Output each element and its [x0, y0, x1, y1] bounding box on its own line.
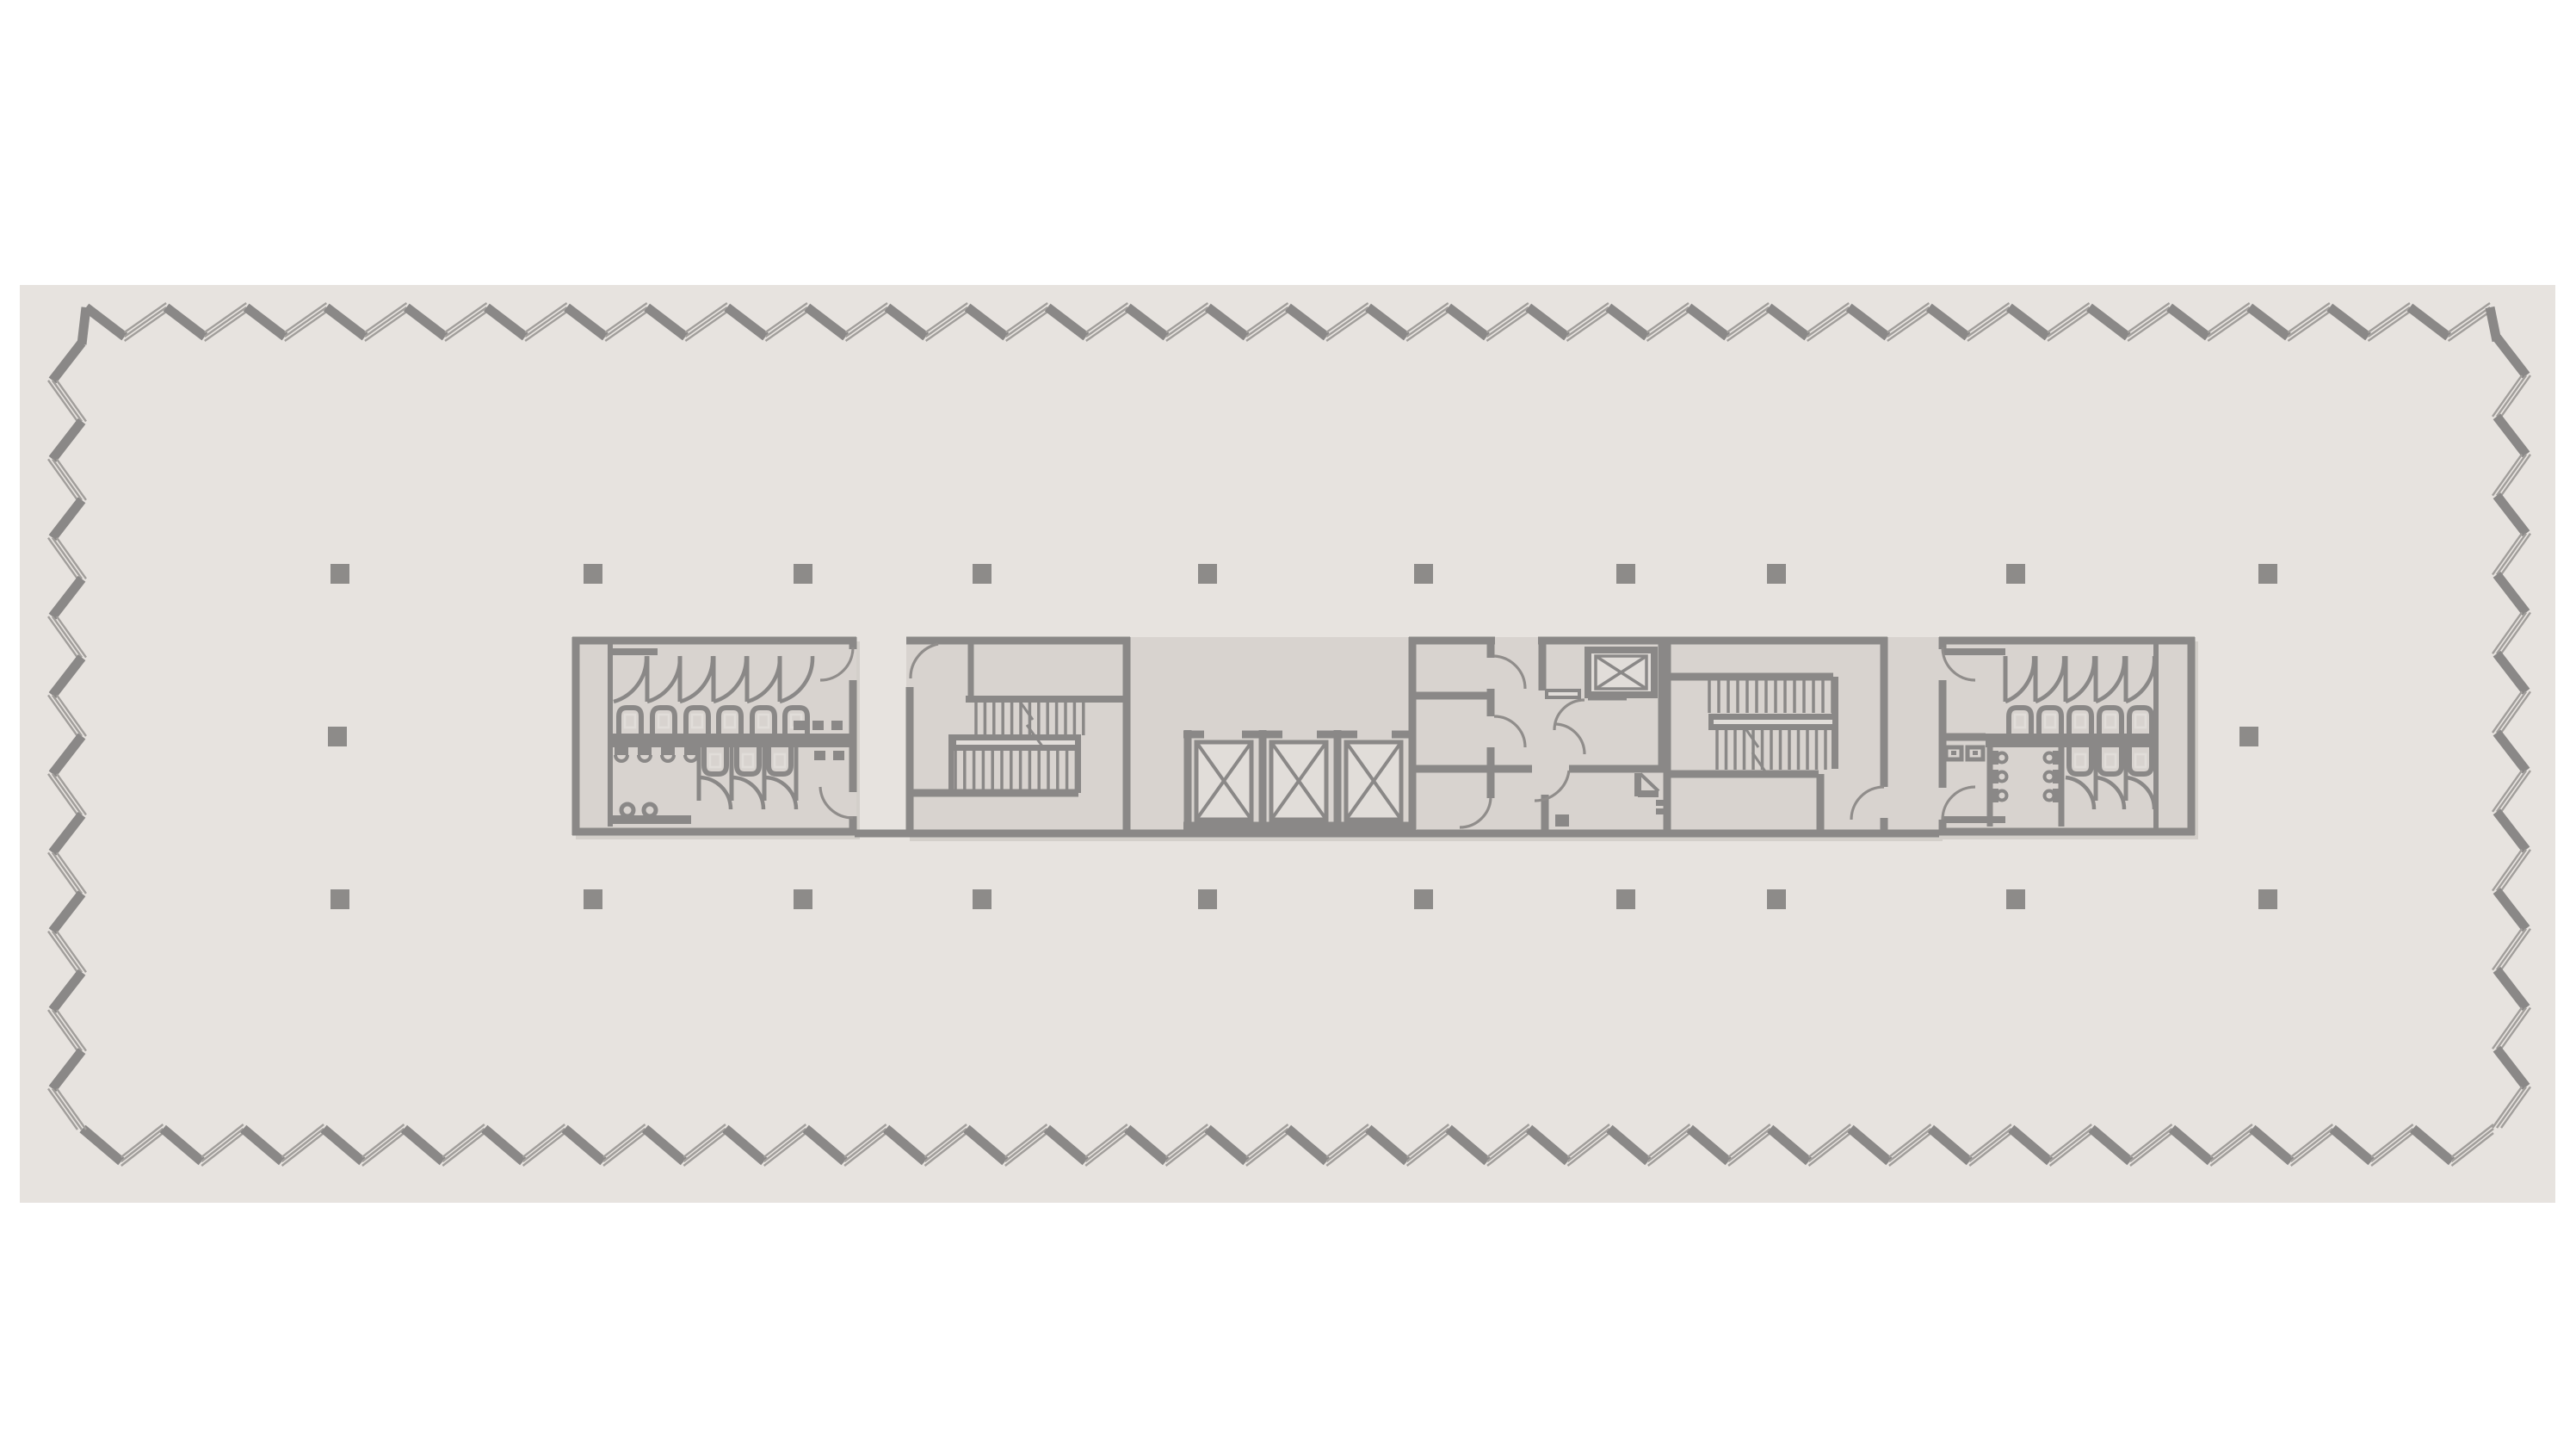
floor-plan-svg	[0, 0, 2576, 1449]
vent-shaft	[1588, 650, 1654, 695]
elevator-bank	[1196, 742, 1401, 820]
floor-plan	[0, 0, 2576, 1449]
